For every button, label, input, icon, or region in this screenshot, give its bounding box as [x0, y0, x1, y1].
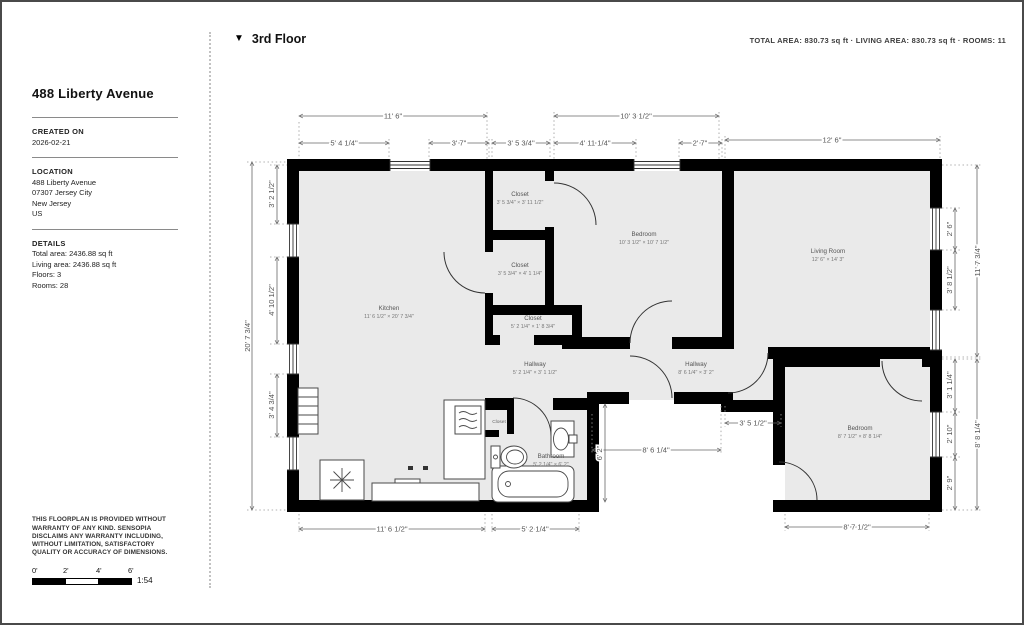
window [634, 159, 680, 171]
room-name: Closet [524, 315, 542, 322]
window [930, 208, 942, 250]
window [390, 159, 430, 171]
room-dims: 10' 3 1/2" × 10' 7 1/2" [619, 240, 669, 246]
room-name: Hallway [685, 361, 708, 368]
dim-label: 3' 5 1/2" [739, 419, 767, 428]
dim-label: 4' 11 1/4" [579, 139, 610, 148]
dim-label: 3' 5 3/4" [507, 139, 535, 148]
dim-label: 5' 4 1/4" [330, 139, 358, 148]
bathtub [492, 466, 574, 502]
window [287, 344, 299, 374]
dim-label: 4' 10 1/2" [267, 284, 276, 316]
room-name: Closet [511, 191, 529, 198]
dim-label: 2' 9" [945, 475, 954, 490]
dim-label: 3' 4 3/4" [267, 391, 276, 419]
dim-label: 20' 7 3/4" [243, 320, 252, 352]
toilet [491, 446, 527, 468]
stove [455, 406, 481, 434]
dim-label: 5' 2 1/4" [521, 525, 549, 534]
window [287, 224, 299, 257]
dim-label: 6' 2" [595, 445, 604, 460]
room-dims: 3' 5 3/4" × 4' 1 1/4" [498, 271, 542, 277]
room-dims: 12' 6" × 14' 3" [812, 257, 845, 263]
dim-label: 3' 1 1/4" [945, 371, 954, 399]
room-name: Bathroom [538, 453, 565, 460]
window [287, 437, 299, 470]
floor-areas [287, 159, 942, 512]
room-name: Hallway [524, 361, 547, 368]
bathroom-sink [551, 421, 577, 457]
dim-label: 2' 6" [945, 221, 954, 236]
floorplan-page: 488 Liberty Avenue CREATED ON 2026-02-21… [0, 0, 1024, 625]
dim-label: 11' 7 3/4" [973, 245, 982, 276]
dim-label: 3' 7" [452, 139, 467, 148]
dim-label: 11' 6" [384, 112, 403, 121]
refrigerator [320, 460, 364, 500]
dim-label: 2' 10" [945, 424, 954, 443]
dim-label: 3' 8 1/2" [945, 266, 954, 294]
room-name: Closet [492, 419, 506, 425]
room-dims: 3' 5 3/4" × 3' 11 1/2" [497, 200, 544, 206]
room-name: Closet [511, 262, 529, 269]
radiator [298, 388, 318, 434]
room-dims: 5' 2 1/4" × 3' 1 1/2" [513, 370, 557, 376]
dim-label: 8' 8 1/4" [973, 420, 982, 448]
dim-label: 8' 6 1/4" [642, 446, 670, 455]
dim-label: 8' 7 1/2" [843, 523, 871, 532]
dim-label: 2' 7" [693, 139, 708, 148]
dim-label: 11' 6 1/2" [376, 525, 407, 534]
snowflake-icon [330, 468, 354, 492]
dim-label: 10' 3 1/2" [620, 112, 652, 121]
floorplan-drawing: 11' 6" 10' 3 1/2" 12' 6" 5' 4 1/4" 3' 7"… [2, 2, 1024, 625]
room-name: Living Room [811, 248, 845, 255]
window [930, 310, 942, 350]
dim-label: 3' 2 1/2" [267, 180, 276, 208]
room-dims: 5' 2 1/4" × 1' 8 3/4" [511, 324, 555, 330]
room-name: Bedroom [631, 231, 656, 238]
room-name: Kitchen [379, 305, 400, 312]
room-dims: 8' 6 1/4" × 3' 2" [678, 370, 714, 376]
window [930, 412, 942, 457]
room-dims: 11' 6 1/2" × 20' 7 3/4" [364, 314, 414, 320]
room-dims: 5' 2 1/4" × 6' 2" [533, 462, 569, 468]
dim-label: 12' 6" [823, 136, 842, 145]
room-name: Bedroom [847, 425, 872, 432]
room-dims: 8' 7 1/2" × 8' 8 1/4" [838, 434, 882, 440]
